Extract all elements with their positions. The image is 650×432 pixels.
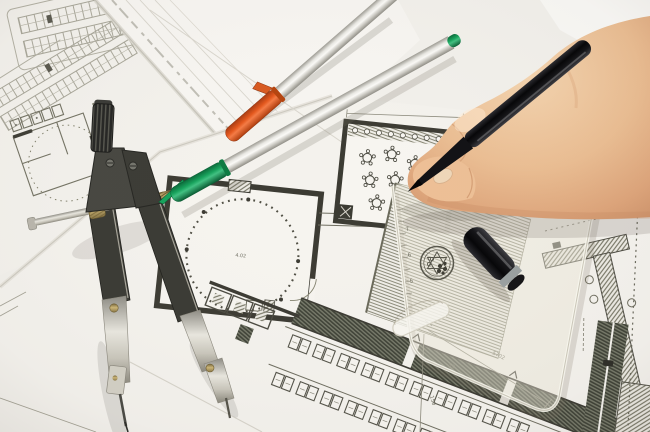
drafting-scene-photo: 370 4.02	[0, 0, 650, 432]
photo-vignette	[0, 0, 650, 432]
scene-canvas: 370 4.02	[0, 0, 650, 432]
